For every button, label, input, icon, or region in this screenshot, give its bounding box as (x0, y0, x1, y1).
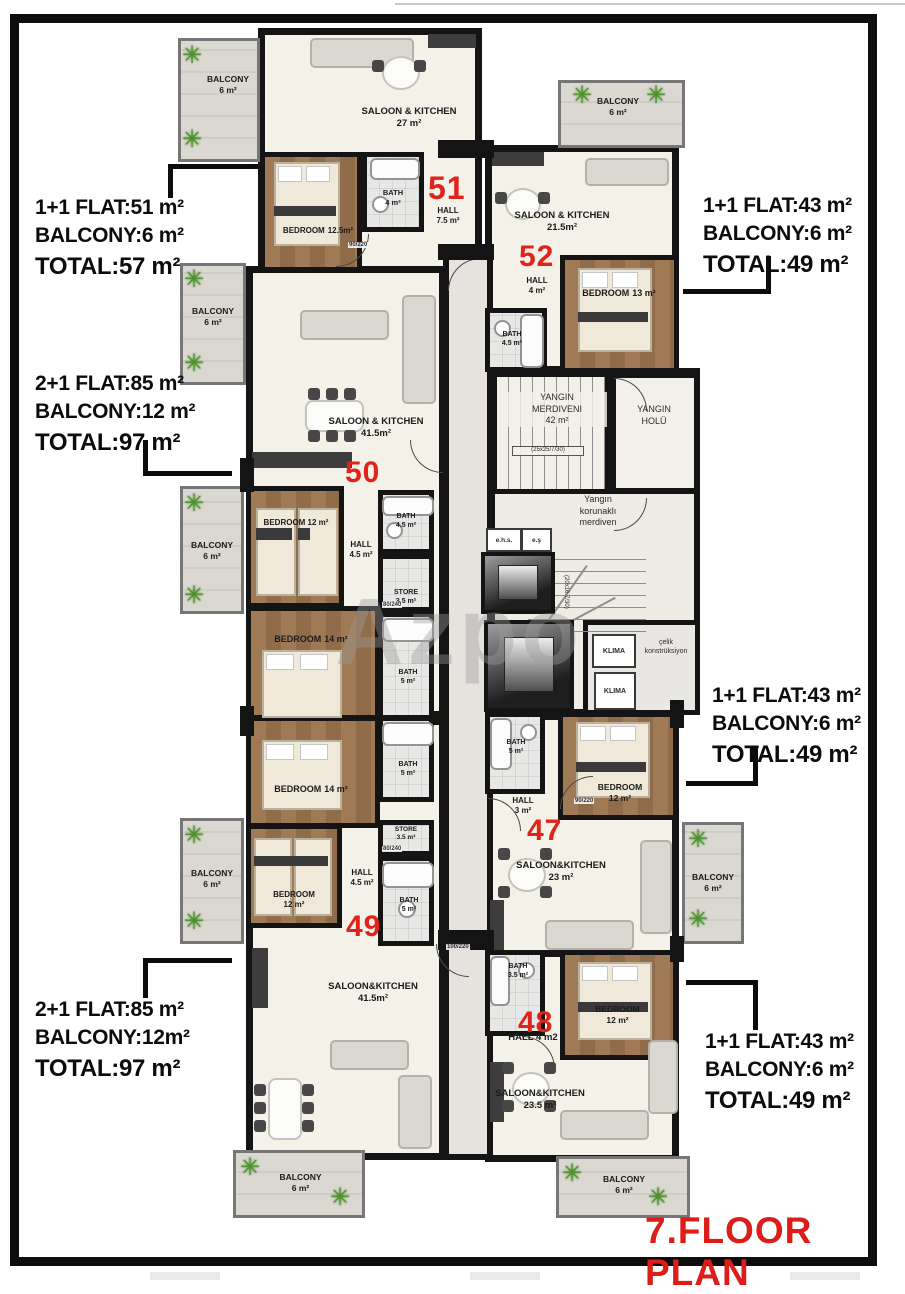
pillow (266, 654, 294, 670)
room-area: 23.5 m² (470, 1100, 610, 1112)
leader-line (143, 958, 232, 963)
room-area: 4.5 m² (336, 550, 386, 560)
chair (254, 1102, 266, 1114)
room-name: HALL (337, 868, 387, 878)
room-area: 41.5m² (307, 993, 439, 1005)
room-name: SALOON&KITCHEN (495, 860, 627, 872)
annotation-flat50: 2+1 FLAT:85 m² BALCONY:12 m² TOTAL:97 m² (35, 370, 195, 459)
room-name: BALCONY (678, 872, 748, 883)
annotation-line: TOTAL:49 m² (705, 1085, 854, 1117)
room-name: BEDROOM 12 m² (264, 518, 329, 527)
room-name: BEDROOM (283, 226, 325, 235)
flat-number-47: 47 (527, 814, 562, 848)
annotation-line: TOTAL:97 m² (35, 427, 195, 459)
annotation-line: 1+1 FLAT:43 m² (712, 682, 861, 710)
annotation-line: BALCONY:6 m² (703, 220, 852, 248)
flat-number-52: 52 (519, 240, 554, 274)
room-name: HALL (423, 206, 473, 216)
room-area: 6 m² (178, 317, 248, 328)
room-name: SALOON & KITCHEN (315, 416, 437, 428)
label-store-flat49: STORE 3.5 m² (381, 826, 431, 843)
annotation-line: BALCONY:12 m² (35, 398, 195, 426)
leader-line (143, 958, 148, 998)
room-name: BATH (487, 330, 537, 339)
plant-icon: ✳ (646, 84, 666, 108)
pillow (266, 744, 294, 760)
wall-block (240, 458, 254, 492)
chair (414, 60, 426, 72)
sofa2-flat48 (648, 1040, 678, 1114)
plant-icon: ✳ (688, 908, 708, 932)
room-name: BALCONY (178, 306, 248, 317)
chair (540, 886, 552, 898)
annotation-line: 1+1 FLAT:43 m² (703, 192, 852, 220)
room-area: 7.5 m² (423, 216, 473, 226)
room-name: BATH (381, 512, 431, 521)
room-name: BEDROOM (274, 634, 321, 644)
room-name: SALOON&KITCHEN (307, 981, 439, 993)
annotation-line: 1+1 FLAT:43 m² (705, 1028, 854, 1056)
protected-stairs-line: korunaklı (548, 506, 648, 518)
label-bath-flat50: BATH 4.5 m² (381, 512, 431, 530)
room-name: BEDROOM (570, 1004, 665, 1015)
bottom-ghost-2 (470, 1272, 540, 1280)
room-area: 5 m² (491, 747, 541, 756)
label-bedroom14-flat49: BEDROOM14 m² (255, 784, 367, 796)
room-area: 5 m² (383, 769, 433, 778)
leader-line (686, 980, 758, 985)
room-name: BEDROOM (254, 890, 334, 900)
label-fire-hall: YANGIN HOLÜ (622, 404, 686, 427)
wall-block (670, 936, 684, 962)
plant-icon: ✳ (572, 84, 592, 108)
sofa-flat49 (330, 1040, 409, 1070)
label-saloon-flat49: SALOON&KITCHEN 41.5m² (307, 981, 439, 1006)
room-area: 41.5m² (315, 428, 437, 440)
label-bath-flat48: BATH 3.5 m² (493, 962, 543, 980)
blanket (298, 528, 310, 540)
ehs-label: e.h.s. (496, 537, 513, 544)
room-name: BALCONY (177, 540, 247, 551)
wall-block (438, 140, 494, 158)
pillow (580, 726, 606, 741)
room-name: STORE (381, 826, 431, 834)
room-name: BATH (384, 896, 434, 905)
celik-line: çelik (634, 638, 698, 647)
room-name: SALOON&KITCHEN (470, 1088, 610, 1100)
stair-spec: (25x25/7/30) (513, 447, 583, 455)
room-name: BEDROOM (274, 784, 321, 794)
flat-number-50: 50 (345, 456, 380, 490)
label-balcony-flat49: BALCONY 6 m² (177, 868, 247, 890)
room-name: HALL (336, 540, 386, 550)
dim-tag: 90/220 (574, 798, 594, 804)
sofa-flat50 (402, 295, 436, 404)
sofa-flat47 (640, 840, 672, 934)
pillow (612, 966, 638, 981)
room-area: 12.5m² (328, 226, 353, 235)
room-name: BATH (366, 188, 420, 198)
label-balcony-flat51: BALCONY 6 m² (188, 74, 268, 96)
annotation-line: BALCONY:6 m² (35, 222, 184, 250)
blanket (256, 528, 292, 540)
leader-line (143, 471, 232, 476)
es-label: e.ş (532, 537, 541, 544)
room-name: HALL (498, 796, 548, 806)
plant-icon: ✳ (240, 1156, 260, 1180)
sofa-flat52 (585, 158, 669, 186)
chair (326, 388, 338, 400)
wall-block (438, 244, 494, 260)
annotation-flat49: 2+1 FLAT:85 m² BALCONY:12m² TOTAL:97 m² (35, 996, 190, 1085)
room-name: BATH (493, 962, 543, 971)
label-saloon-flat50: SALOON & KITCHEN 41.5m² (315, 416, 437, 441)
annotation-line: 1+1 FLAT:51 m² (35, 194, 184, 222)
floor-plan-page: { "page": {"title": "7.FLOOR PLAN", "wat… (0, 0, 905, 1280)
annotation-flat52: 1+1 FLAT:43 m² BALCONY:6 m² TOTAL:49 m² (703, 192, 852, 281)
room-area: 4.5 m² (487, 339, 537, 348)
annotation-line: TOTAL:97 m² (35, 1053, 190, 1085)
plant-icon: ✳ (688, 828, 708, 852)
sofa2-flat49 (398, 1075, 432, 1149)
dining-table-flat49 (268, 1078, 302, 1140)
plant-icon: ✳ (184, 492, 204, 516)
room-area: 3.5 m² (381, 834, 431, 842)
label-hall-flat49: HALL 4.5 m² (337, 868, 387, 889)
label-bath5-flat49-upper: BATH 5 m² (383, 760, 433, 778)
room-area: 23 m² (495, 872, 627, 884)
room-name: BALCONY (258, 1172, 343, 1183)
pillow (612, 272, 638, 288)
wall-block (240, 706, 254, 736)
chair (498, 886, 510, 898)
label-bedroom-flat52: BEDROOM13 m² (563, 288, 675, 300)
chair (302, 1084, 314, 1096)
chair (502, 1062, 514, 1074)
label-hall-flat50: HALL 4.5 m² (336, 540, 386, 561)
bathtub-flat51 (370, 158, 420, 180)
ehs-box: e.h.s. (486, 528, 522, 552)
top-edge-line (395, 3, 905, 5)
annotation-line: TOTAL:57 m² (35, 251, 184, 283)
chair (302, 1120, 314, 1132)
plant-icon: ✳ (184, 824, 204, 848)
label-bedroom-flat51: BEDROOM12.5m² (268, 226, 368, 236)
chair (254, 1084, 266, 1096)
label-balcony-flat47: BALCONY 6 m² (678, 872, 748, 894)
watermark: Azpo (335, 578, 583, 687)
chair (372, 60, 384, 72)
protected-stairs-line: Yangın (548, 494, 648, 506)
pillow (300, 654, 328, 670)
room-name: SALOON & KITCHEN (500, 210, 624, 222)
klima-label-1: KLIMA (603, 648, 625, 655)
leader-line (683, 289, 771, 294)
dim-tag: 100/220 (446, 944, 470, 950)
es-box: e.ş (521, 528, 552, 552)
label-bedroom-flat48: BEDROOM 12 m² (570, 1004, 665, 1026)
room-name: BEDROOM (582, 288, 629, 298)
annotation-flat48: 1+1 FLAT:43 m² BALCONY:6 m² TOTAL:49 m² (705, 1028, 854, 1117)
plant-icon: ✳ (648, 1186, 668, 1210)
fire-hall-line: HOLÜ (622, 416, 686, 428)
bottom-ghost-1 (150, 1272, 220, 1280)
chair (538, 192, 550, 204)
room-area: 6 m² (678, 883, 748, 894)
label-celik: çelik konstrüksiyon (634, 638, 698, 656)
leader-line (168, 164, 173, 198)
room-name: HALL (512, 276, 562, 286)
blanket (274, 206, 336, 216)
dim-tag: 90/220 (348, 242, 368, 248)
klima-box-1: KLIMA (592, 634, 636, 668)
pillow (300, 744, 328, 760)
room-area: 3.5 m² (493, 971, 543, 980)
fire-stairs-line: 42 m² (507, 415, 607, 427)
dim-tag: 80/240 (382, 846, 402, 852)
room-area: 21.5m² (500, 222, 624, 234)
room-area: 6 m² (177, 879, 247, 890)
kitchen-counter-flat51 (428, 34, 476, 48)
annotation-flat51: 1+1 FLAT:51 m² BALCONY:6 m² TOTAL:57 m² (35, 194, 184, 283)
annotation-line: TOTAL:49 m² (712, 739, 861, 771)
leader-line (753, 980, 758, 1030)
kitchen-counter-flat49 (252, 948, 268, 1008)
label-bath-flat49: BATH 5 m² (384, 896, 434, 914)
bathtub-flat49 (382, 862, 434, 888)
sofa-flat48 (560, 1110, 649, 1140)
chair (254, 1120, 266, 1132)
annotation-line: BALCONY:6 m² (712, 710, 861, 738)
kitchen-counter-flat52 (492, 152, 544, 166)
klima-box-2: KLIMA (594, 672, 636, 710)
fire-stairs-line: MERDIVENI (507, 404, 607, 416)
room-name: BEDROOM (570, 782, 670, 793)
annotation-line: 2+1 FLAT:85 m² (35, 996, 190, 1024)
pillow (582, 966, 608, 981)
blanket (576, 762, 646, 772)
room-area: 4.5 m² (337, 878, 387, 888)
bathtub-flat49-upper (382, 722, 434, 746)
room-area: 6 m² (188, 85, 268, 96)
label-bath-flat52: BATH 4.5 m² (487, 330, 537, 348)
label-balcony-flat50-upper: BALCONY 6 m² (178, 306, 248, 328)
celik-line: konstrüksiyon (634, 647, 698, 656)
label-hall-flat52: HALL 4 m² (512, 276, 562, 297)
fire-stairs-line: YANGIN (507, 392, 607, 404)
annotation-line: 2+1 FLAT:85 m² (35, 370, 195, 398)
pillow (582, 272, 608, 288)
chair (540, 848, 552, 860)
flat-number-51: 51 (428, 170, 466, 207)
label-fire-stairs: YANGIN MERDIVENI 42 m² (507, 392, 607, 427)
label-protected-stairs: Yangın korunaklı merdiven (548, 494, 648, 529)
label-bedroom12-flat49: BEDROOM 12 m² (254, 890, 334, 911)
flat-number-48: 48 (518, 1006, 553, 1040)
annotation-flat47: 1+1 FLAT:43 m² BALCONY:6 m² TOTAL:49 m² (712, 682, 861, 771)
plant-icon: ✳ (184, 268, 204, 292)
room-area: 27 m² (348, 118, 470, 130)
room-area: 4 m² (512, 286, 562, 296)
room-name: BATH (491, 738, 541, 747)
room-name: BALCONY (188, 74, 268, 85)
room-area: 5 m² (384, 905, 434, 914)
fire-hall-line: YANGIN (622, 404, 686, 416)
flat-number-49: 49 (346, 910, 381, 944)
room-name: BATH (383, 760, 433, 769)
kitchen-counter-flat50 (252, 452, 352, 468)
label-fire-stairs-spec: (25x25/7/30) (512, 446, 584, 456)
chair (344, 388, 356, 400)
room-area: 12 m² (570, 1015, 665, 1026)
chair (302, 1102, 314, 1114)
pillow (610, 726, 636, 741)
room-area: 4 m² (366, 198, 420, 208)
leader-line (686, 781, 758, 786)
chair (308, 388, 320, 400)
chair (498, 848, 510, 860)
label-hall-flat51: HALL 7.5 m² (423, 206, 473, 227)
room-name: BALCONY (177, 868, 247, 879)
plant-icon: ✳ (330, 1186, 350, 1210)
leader-line (168, 164, 258, 169)
plant-icon: ✳ (184, 584, 204, 608)
plant-icon: ✳ (182, 128, 202, 152)
label-saloon-flat51: SALOON & KITCHEN 27 m² (348, 106, 470, 131)
plant-icon: ✳ (182, 44, 202, 68)
sofa2-flat50 (300, 310, 389, 340)
label-bedroom12-flat50: BEDROOM 12 m² (250, 518, 342, 528)
annotation-line: BALCONY:12m² (35, 1024, 190, 1052)
plant-icon: ✳ (562, 1162, 582, 1186)
floor-plan-title: 7.FLOOR PLAN (645, 1210, 905, 1294)
blanket (254, 856, 328, 866)
label-saloon-flat48: SALOON&KITCHEN 23.5 m² (470, 1088, 610, 1113)
label-saloon-flat47: SALOON&KITCHEN 23 m² (495, 860, 627, 885)
label-balcony-flat50-lower: BALCONY 6 m² (177, 540, 247, 562)
label-bath-flat51: BATH 4 m² (366, 188, 420, 208)
annotation-line: TOTAL:49 m² (703, 249, 852, 281)
room-area: 14 m² (324, 784, 348, 794)
room-area: 13 m² (632, 288, 656, 298)
label-bath-flat47: BATH 5 m² (491, 738, 541, 756)
blanket (578, 312, 648, 322)
label-saloon-flat52: SALOON & KITCHEN 21.5m² (500, 210, 624, 235)
room-name: SALOON & KITCHEN (348, 106, 470, 118)
protected-stairs-line: merdiven (548, 517, 648, 529)
plant-icon: ✳ (184, 910, 204, 934)
klima-label-2: KLIMA (604, 688, 626, 695)
room-area: 6 m² (177, 551, 247, 562)
fire-stairs (492, 372, 610, 494)
room-area: 12 m² (254, 900, 334, 910)
chair (495, 192, 507, 204)
pillow (278, 166, 302, 182)
annotation-line: BALCONY:6 m² (705, 1056, 854, 1084)
room-area: 4.5 m² (381, 521, 431, 530)
sofa2-flat47 (545, 920, 634, 950)
wall-block (670, 700, 684, 728)
pillow (306, 166, 330, 182)
